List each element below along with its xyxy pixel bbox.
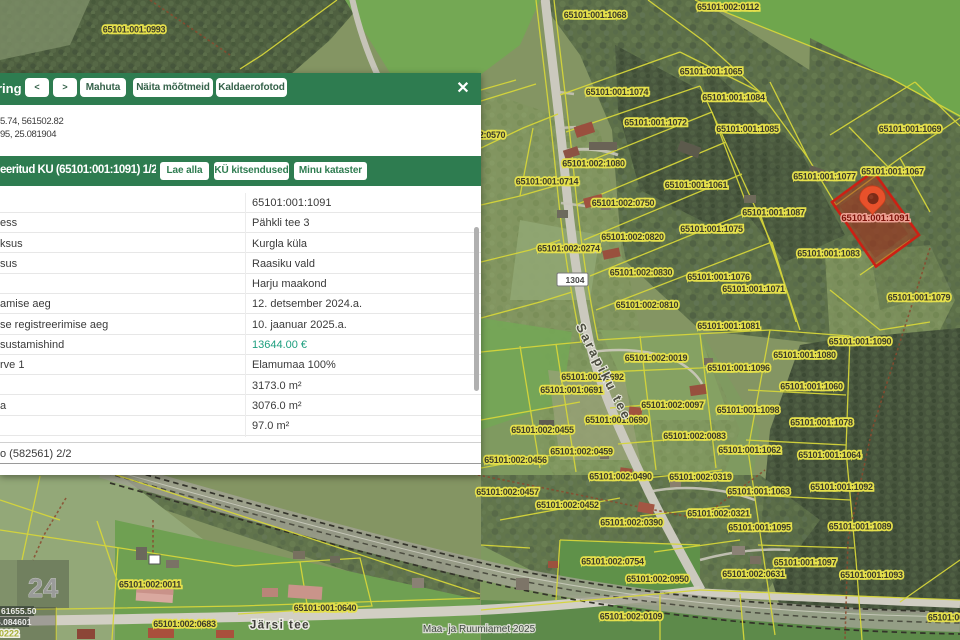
svg-text:65101:001:1085: 65101:001:1085 — [716, 124, 779, 134]
svg-text:65101:001:1077: 65101:001:1077 — [793, 172, 856, 182]
svg-text:65101:002:0112: 65101:002:0112 — [697, 2, 759, 12]
svg-text:65101:002:0631: 65101:002:0631 — [722, 569, 785, 579]
svg-text:65101:002:0830: 65101:002:0830 — [610, 268, 673, 278]
svg-text:65101:001:1084: 65101:001:1084 — [702, 93, 765, 103]
svg-text:65101:002:0011: 65101:002:0011 — [119, 580, 181, 590]
svg-text:65101:002:0: 65101:002:0 — [928, 613, 960, 623]
svg-text:65101:001:1098: 65101:001:1098 — [717, 405, 780, 415]
svg-text:65101:002:1080: 65101:002:1080 — [562, 159, 625, 169]
svg-text:24: 24 — [28, 573, 58, 603]
svg-text:65101:001:1062: 65101:001:1062 — [718, 445, 781, 455]
svg-text:65101:001:1078: 65101:001:1078 — [790, 418, 853, 428]
svg-text:65101:001:1090: 65101:001:1090 — [829, 337, 892, 347]
svg-text:65101:001:1096: 65101:001:1096 — [707, 363, 770, 373]
svg-text:65101:002:0820: 65101:002:0820 — [601, 232, 664, 242]
svg-text:65101:001:1061: 65101:001:1061 — [665, 180, 728, 190]
svg-text:65101:002:0455: 65101:002:0455 — [511, 425, 574, 435]
svg-text:65101:002:0274: 65101:002:0274 — [537, 244, 600, 254]
svg-text:65101:001:1079: 65101:001:1079 — [888, 293, 951, 303]
svg-text:65101:001:1063: 65101:001:1063 — [727, 487, 790, 497]
svg-text:65101:001:1067: 65101:001:1067 — [861, 167, 924, 177]
svg-text:65101:001:1080: 65101:001:1080 — [773, 350, 836, 360]
svg-text:65101:002:0019: 65101:002:0019 — [625, 353, 688, 363]
svg-text:65101:002:0097: 65101:002:0097 — [641, 400, 704, 410]
svg-text:65101:002:0950: 65101:002:0950 — [626, 574, 689, 584]
svg-text:65101:001:1068: 65101:001:1068 — [564, 10, 627, 20]
svg-text:65101:002:0109: 65101:002:0109 — [600, 612, 663, 622]
svg-text:65101:001:1081: 65101:001:1081 — [697, 321, 760, 331]
svg-text:65101:002:0452: 65101:002:0452 — [536, 500, 599, 510]
svg-text:65101:001:1071: 65101:001:1071 — [722, 284, 785, 294]
svg-text:65101:002:0390: 65101:002:0390 — [600, 518, 663, 528]
svg-text:65101:001:1091: 65101:001:1091 — [841, 213, 910, 224]
svg-text:1304: 1304 — [566, 275, 585, 285]
svg-text:Maa- ja Ruumiamet 2025: Maa- ja Ruumiamet 2025 — [423, 624, 536, 635]
svg-text:65101:001:1072: 65101:001:1072 — [624, 118, 687, 128]
svg-text:65101:002:0683: 65101:002:0683 — [153, 619, 216, 629]
svg-text:65101:001:1075: 65101:001:1075 — [680, 224, 743, 234]
svg-text:65101:001:1076: 65101:001:1076 — [687, 272, 750, 282]
svg-text:Järsi tee: Järsi tee — [250, 620, 310, 632]
svg-text:6.084601: 6.084601 — [0, 617, 32, 627]
svg-text:65101:002:0810: 65101:002:0810 — [616, 300, 679, 310]
svg-text:65101:002:0457: 65101:002:0457 — [476, 487, 539, 497]
svg-text:65101:001:0714: 65101:001:0714 — [516, 177, 579, 187]
svg-text:65101:001:1089: 65101:001:1089 — [829, 522, 892, 532]
svg-text:65101:001:1065: 65101:001:1065 — [680, 67, 743, 77]
svg-text:65101:001:1060: 65101:001:1060 — [780, 382, 843, 392]
svg-text:65101:002:0456: 65101:002:0456 — [484, 455, 547, 465]
svg-text:65101:001:1074: 65101:001:1074 — [586, 87, 649, 97]
svg-text:65101:001:0993: 65101:001:0993 — [103, 25, 166, 35]
svg-text:65101:001:1092: 65101:001:1092 — [810, 482, 873, 492]
svg-text:65101:002:0490: 65101:002:0490 — [589, 472, 652, 482]
svg-text:65101:001:1097: 65101:001:1097 — [774, 558, 837, 568]
svg-text:61655.50: 61655.50 — [1, 606, 37, 616]
svg-text:65101:001:1083: 65101:001:1083 — [797, 249, 860, 259]
svg-text:65101:002:0222: 65101:002:0222 — [0, 629, 19, 639]
svg-text:65101:002:0321: 65101:002:0321 — [687, 509, 750, 519]
svg-text:65101:002:0319: 65101:002:0319 — [669, 472, 732, 482]
svg-text:65101:001:1064: 65101:001:1064 — [798, 450, 861, 460]
svg-text:65101:002:0754: 65101:002:0754 — [581, 557, 644, 567]
svg-text:65101:001:0690: 65101:001:0690 — [585, 415, 648, 425]
svg-text:65101:001:1093: 65101:001:1093 — [840, 570, 903, 580]
svg-text:65101:001:1087: 65101:001:1087 — [742, 208, 805, 218]
svg-text:65101:002:0459: 65101:002:0459 — [550, 447, 613, 457]
svg-text:65101:001:0640: 65101:001:0640 — [294, 603, 357, 613]
svg-text:65101:002:0750: 65101:002:0750 — [592, 198, 655, 208]
svg-text:65101:001:1069: 65101:001:1069 — [879, 124, 942, 134]
svg-text:65101:001:0691: 65101:001:0691 — [540, 385, 603, 395]
svg-text:65101:002:0083: 65101:002:0083 — [663, 431, 726, 441]
svg-text:65101:001:1095: 65101:001:1095 — [728, 523, 791, 533]
